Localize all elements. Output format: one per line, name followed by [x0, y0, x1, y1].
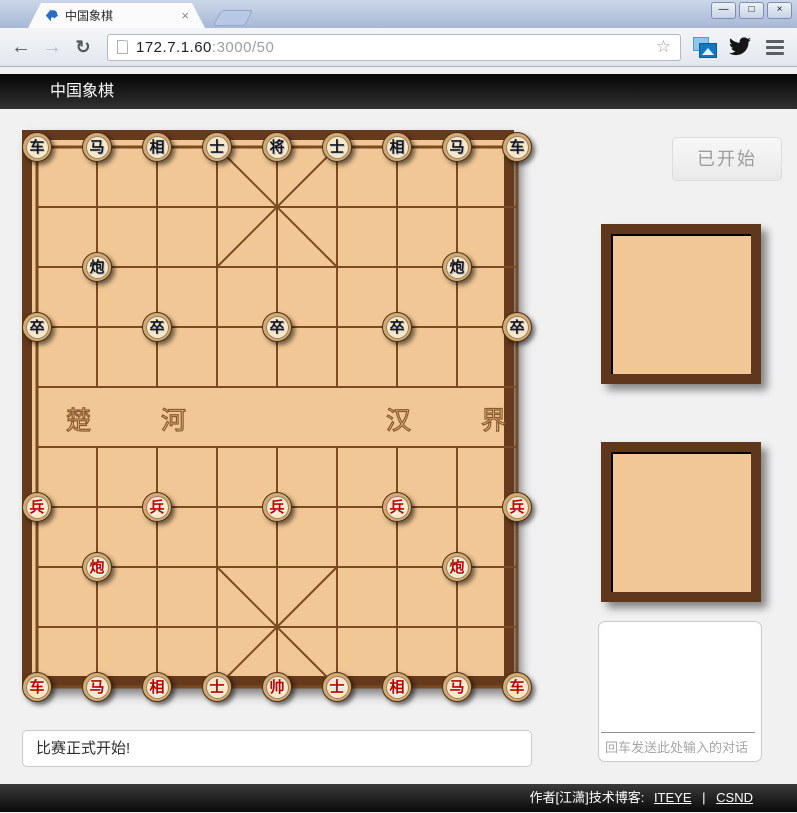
piece-label: 相: [146, 136, 169, 159]
xiangqi-piece-black[interactable]: 卒: [142, 312, 172, 342]
xiangqi-piece-red[interactable]: 兵: [502, 492, 532, 522]
xiangqi-piece-red[interactable]: 车: [502, 672, 532, 702]
piece-label: 卒: [26, 316, 49, 339]
piece-label: 兵: [506, 496, 529, 519]
page-title: 中国象棋: [50, 83, 114, 100]
bookmark-star-icon[interactable]: ☆: [656, 37, 671, 57]
piece-label: 马: [86, 676, 109, 699]
url-path: :3000/50: [212, 39, 274, 56]
piece-label: 车: [506, 676, 529, 699]
window-controls: — □ ×: [711, 2, 792, 19]
xiangqi-piece-red[interactable]: 相: [142, 672, 172, 702]
close-button[interactable]: ×: [767, 2, 792, 19]
xiangqi-piece-black[interactable]: 卒: [22, 312, 52, 342]
xiangqi-piece-black[interactable]: 卒: [502, 312, 532, 342]
xiangqi-piece-red[interactable]: 兵: [22, 492, 52, 522]
piece-label: 士: [206, 676, 229, 699]
browser-tab[interactable]: 中国象棋 ×: [28, 3, 205, 28]
xiangqi-piece-black[interactable]: 马: [82, 132, 112, 162]
piece-label: 炮: [446, 556, 469, 579]
url-text[interactable]: 172.7.1.60:3000/50: [136, 39, 274, 56]
xiangqi-piece-black[interactable]: 车: [22, 132, 52, 162]
piece-label: 马: [86, 136, 109, 159]
footer-link-iteye[interactable]: ITEYE: [654, 790, 692, 805]
piece-label: 卒: [266, 316, 289, 339]
tab-close-icon[interactable]: ×: [181, 9, 189, 22]
xiangqi-piece-red[interactable]: 马: [442, 672, 472, 702]
xiangqi-piece-black[interactable]: 马: [442, 132, 472, 162]
browser-toolbar: ← → ↻ 172.7.1.60:3000/50 ☆: [0, 28, 797, 67]
url-host: 172.7.1.60: [136, 39, 212, 56]
back-button[interactable]: ←: [9, 36, 33, 59]
xiangqi-piece-black[interactable]: 卒: [382, 312, 412, 342]
piece-label: 帅: [266, 676, 289, 699]
forward-button[interactable]: →: [40, 36, 64, 59]
url-bar[interactable]: 172.7.1.60:3000/50 ☆: [107, 34, 681, 61]
twitter-bird-icon[interactable]: [727, 37, 752, 57]
xiangqi-piece-red[interactable]: 兵: [382, 492, 412, 522]
chat-panel: [598, 621, 762, 762]
xiangqi-piece-red[interactable]: 士: [322, 672, 352, 702]
tab-title: 中国象棋: [65, 7, 113, 24]
piece-label: 将: [266, 136, 289, 159]
piece-label: 兵: [266, 496, 289, 519]
xiangqi-piece-red[interactable]: 相: [382, 672, 412, 702]
captured-pieces-box-top: [601, 224, 761, 384]
new-tab-button[interactable]: [213, 10, 254, 26]
xiangqi-piece-black[interactable]: 炮: [442, 252, 472, 282]
xiangqi-piece-black[interactable]: 将: [262, 132, 292, 162]
xiangqi-piece-red[interactable]: 士: [202, 672, 232, 702]
maximize-button[interactable]: □: [739, 2, 764, 19]
favicon-icon: [45, 9, 59, 22]
piece-label: 相: [386, 136, 409, 159]
xiangqi-piece-red[interactable]: 马: [82, 672, 112, 702]
piece-label: 马: [446, 676, 469, 699]
xiangqi-piece-red[interactable]: 车: [22, 672, 52, 702]
xiangqi-piece-black[interactable]: 卒: [262, 312, 292, 342]
xiangqi-piece-red[interactable]: 兵: [262, 492, 292, 522]
xiangqi-board[interactable]: 楚 河 汉 界 车马相士将士相马车炮炮卒卒卒卒卒兵兵兵兵兵炮炮车马相士帅士相马车: [22, 130, 514, 686]
xiangqi-piece-red[interactable]: 炮: [82, 552, 112, 582]
start-button[interactable]: 已开始: [672, 137, 782, 181]
minimize-button[interactable]: —: [711, 2, 736, 19]
xiangqi-piece-black[interactable]: 士: [202, 132, 232, 162]
river-label-right: 汉 界: [386, 401, 537, 437]
xiangqi-piece-red[interactable]: 兵: [142, 492, 172, 522]
piece-label: 炮: [86, 556, 109, 579]
page-icon: [117, 40, 128, 54]
piece-label: 相: [146, 676, 169, 699]
xiangqi-piece-black[interactable]: 车: [502, 132, 532, 162]
xiangqi-piece-black[interactable]: 相: [382, 132, 412, 162]
piece-label: 炮: [446, 256, 469, 279]
xiangqi-piece-red[interactable]: 炮: [442, 552, 472, 582]
piece-label: 卒: [146, 316, 169, 339]
xiangqi-piece-black[interactable]: 炮: [82, 252, 112, 282]
chat-log: [599, 622, 761, 732]
footer-author-text: 作者[江潇]技术博客:: [529, 790, 644, 805]
browser-titlebar: 中国象棋 × — □ ×: [0, 0, 797, 28]
menu-icon[interactable]: [766, 40, 784, 55]
piece-label: 车: [26, 136, 49, 159]
piece-label: 卒: [386, 316, 409, 339]
piece-label: 士: [326, 676, 349, 699]
footer-separator: |: [702, 790, 705, 805]
piece-label: 车: [506, 136, 529, 159]
piece-label: 兵: [26, 496, 49, 519]
chat-input[interactable]: [599, 733, 761, 761]
piece-label: 炮: [86, 256, 109, 279]
chrome-gap: [0, 67, 797, 74]
xiangqi-piece-black[interactable]: 相: [142, 132, 172, 162]
piece-label: 士: [326, 136, 349, 159]
piece-label: 车: [26, 676, 49, 699]
reload-button[interactable]: ↻: [71, 37, 95, 58]
captured-pieces-box-bottom: [601, 442, 761, 602]
xiangqi-piece-black[interactable]: 士: [322, 132, 352, 162]
piece-label: 卒: [506, 316, 529, 339]
piece-label: 士: [206, 136, 229, 159]
piece-label: 兵: [386, 496, 409, 519]
piece-label: 马: [446, 136, 469, 159]
game-area: 楚 河 汉 界 车马相士将士相马车炮炮卒卒卒卒卒兵兵兵兵兵炮炮车马相士帅士相马车…: [0, 109, 797, 784]
river-label-left: 楚 河: [66, 401, 217, 437]
app-header: 中国象棋: [0, 74, 797, 109]
photos-extension-icon[interactable]: [693, 37, 717, 58]
status-message-bar: 比赛正式开始!: [22, 730, 532, 767]
piece-label: 相: [386, 676, 409, 699]
footer-link-csnd[interactable]: CSND: [716, 790, 753, 805]
xiangqi-piece-red[interactable]: 帅: [262, 672, 292, 702]
piece-label: 兵: [146, 496, 169, 519]
photos-extension-front-square: [699, 43, 717, 58]
page-footer: 作者[江潇]技术博客: ITEYE | CSND: [0, 784, 797, 812]
